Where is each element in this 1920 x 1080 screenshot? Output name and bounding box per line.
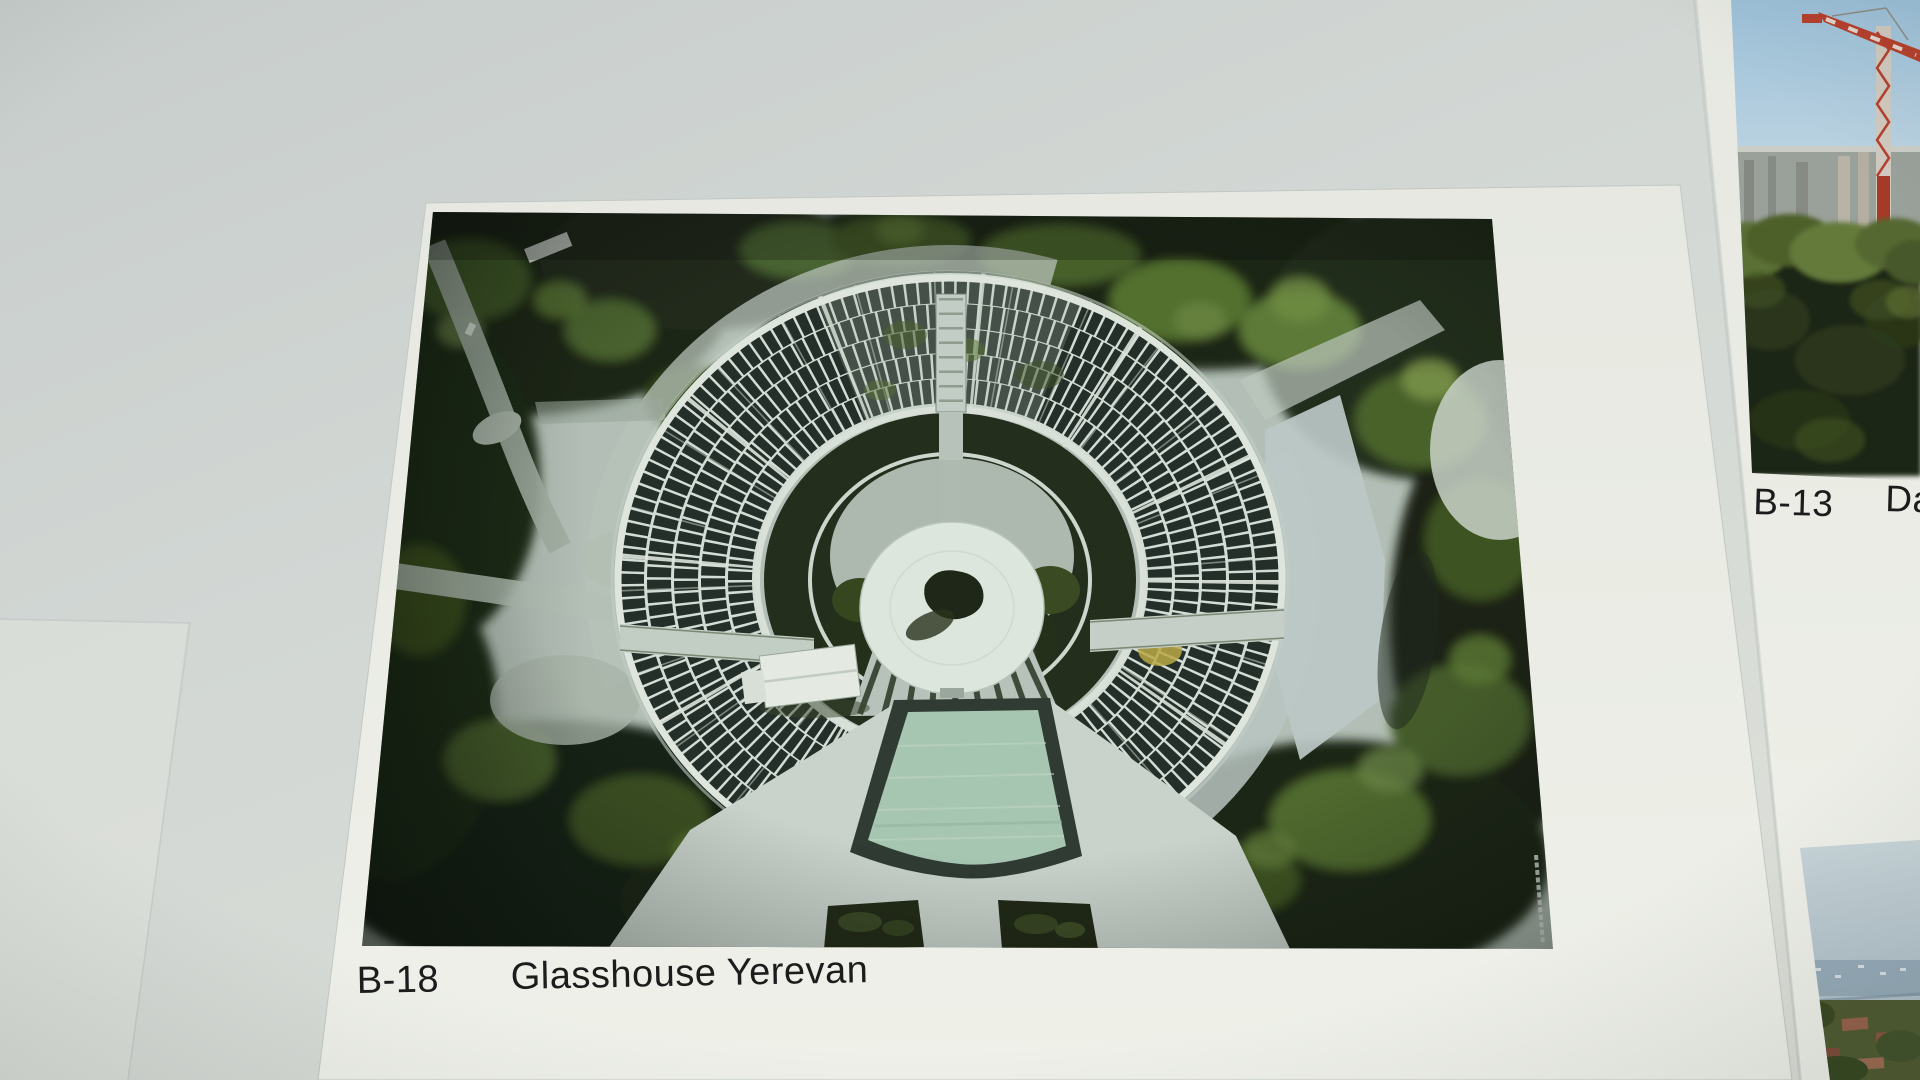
photographed-wall-scene: B-13 Da: [0, 0, 1920, 1080]
scene-canvas: B-13 Da: [0, 0, 1920, 1080]
scene-vignette: [0, 0, 1920, 1080]
